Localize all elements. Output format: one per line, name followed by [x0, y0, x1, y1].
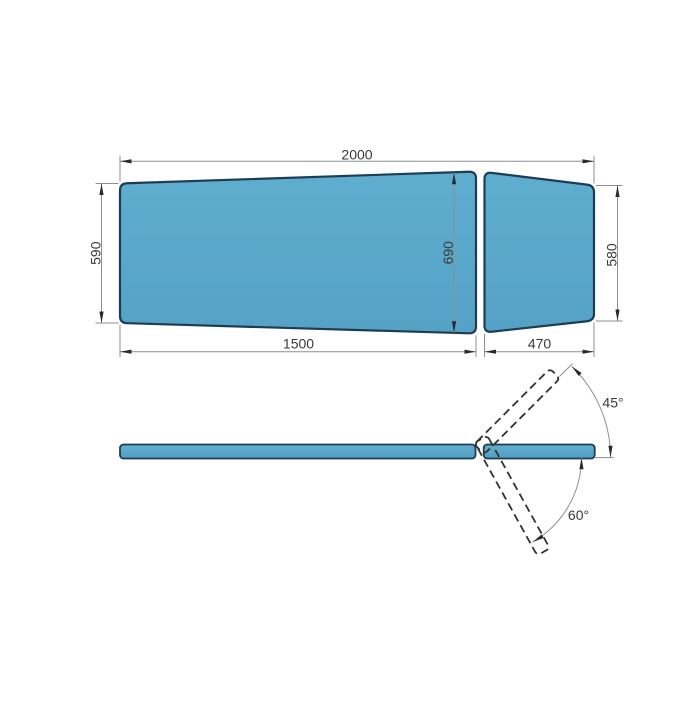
- svg-text:690: 690: [440, 241, 456, 265]
- svg-text:590: 590: [88, 241, 104, 265]
- svg-text:60°: 60°: [568, 507, 589, 523]
- svg-text:2000: 2000: [341, 146, 372, 162]
- svg-text:45°: 45°: [602, 395, 623, 411]
- svg-text:1500: 1500: [283, 336, 314, 352]
- svg-text:470: 470: [528, 336, 552, 352]
- svg-text:580: 580: [604, 243, 620, 267]
